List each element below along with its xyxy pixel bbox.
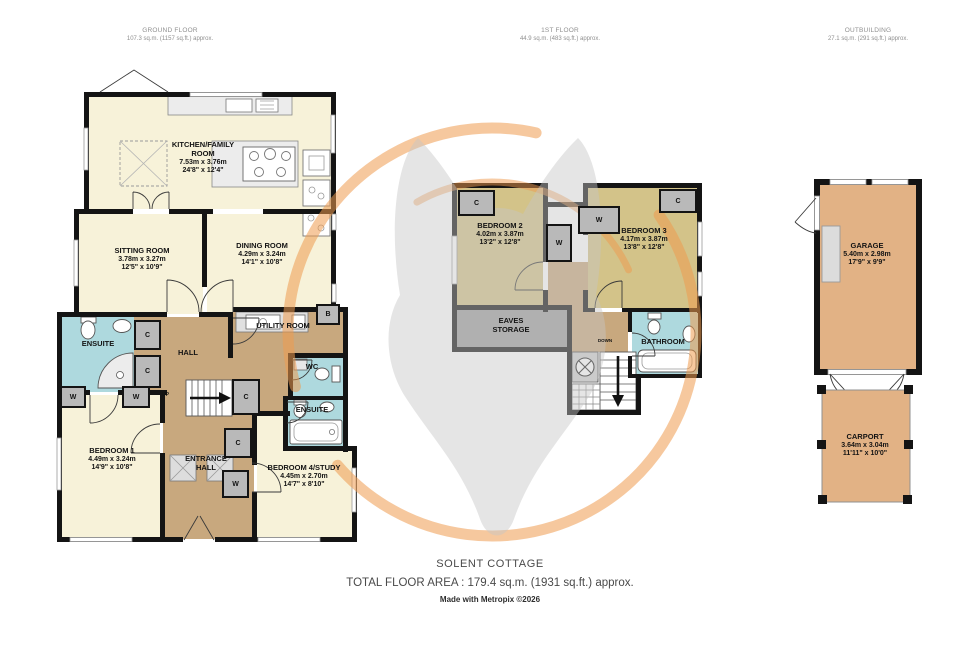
rooflight-box <box>572 352 598 382</box>
room-label-eaves: EAVES STORAGE <box>481 317 541 335</box>
first-floor-title: 1ST FLOOR <box>460 26 660 35</box>
cupboard-box: C <box>224 428 252 458</box>
room-label-bedroom3: BEDROOM 3 4.17m x 3.87m 13'8" x 12'8" <box>596 227 692 252</box>
room-label-dining: DINING ROOM 4.29m x 3.24m 14'1" x 10'8" <box>217 242 307 267</box>
boiler-box: B <box>316 304 340 325</box>
ground-floor-title: GROUND FLOOR <box>70 26 270 35</box>
room-label-garage: GARAGE 5.40m x 2.98m 17'9" x 9'9" <box>819 242 915 267</box>
room-label-bedroom4: BEDROOM 4/STUDY 4.45m x 2.70m 14'7" x 8'… <box>249 464 359 489</box>
ground-floor-area: 107.3 sq.m. (1157 sq.ft.) approx. <box>70 35 270 43</box>
room-label-ensuite2: ENSUITE <box>277 406 347 415</box>
cupboard-box: C <box>134 320 161 350</box>
kitchen-counter-sink <box>168 96 292 115</box>
first-floor-area: 44.9 sq.m. (483 sq.ft.) approx. <box>460 35 660 43</box>
room-label-bedroom2: BEDROOM 2 4.02m x 3.87m 13'2" x 12'8" <box>452 222 548 247</box>
metropix-credit: Made with Metropix ©2026 <box>0 595 980 604</box>
room-label-wc: WC <box>294 363 330 372</box>
wardrobe-box: W <box>546 224 572 262</box>
room-label-utility: UTILITY ROOM <box>253 322 313 331</box>
hatched-glazing <box>572 384 600 410</box>
room-label-ensuite1: ENSUITE <box>63 340 133 349</box>
room-label-sitting: SITTING ROOM 3.78m x 3.27m 12'5" x 10'9" <box>97 247 187 272</box>
outbuilding-title: OUTBUILDING <box>768 26 968 35</box>
room-label-bathroom: BATHROOM <box>625 338 701 347</box>
stairs-down-label: DOWN <box>592 338 618 343</box>
outbuilding-area: 27.1 sq.m. (291 sq.ft.) approx. <box>768 35 968 43</box>
ground-floor-header: GROUND FLOOR 107.3 sq.m. (1157 sq.ft.) a… <box>70 26 270 43</box>
stairs-up-label: UP <box>162 392 169 398</box>
cupboard-box: C <box>232 379 260 415</box>
room-label-kitchen: KITCHEN/FAMILY ROOM 7.53m x 3.76m 24'8" … <box>161 141 245 175</box>
wardrobe-box: W <box>60 386 86 408</box>
kitchen-appliances <box>303 150 330 236</box>
cupboard-box: C <box>458 190 495 216</box>
floorplan-canvas: GROUND FLOOR 107.3 sq.m. (1157 sq.ft.) a… <box>0 0 980 671</box>
outbuilding-header: OUTBUILDING 27.1 sq.m. (291 sq.ft.) appr… <box>768 26 968 43</box>
stairs-up <box>186 380 232 416</box>
wardrobe-box: W <box>222 470 249 498</box>
room-label-entrance: ENTRANCE HALL <box>176 455 236 473</box>
first-floor-header: 1ST FLOOR 44.9 sq.m. (483 sq.ft.) approx… <box>460 26 660 43</box>
room-label-bedroom1: BEDROOM 1 4.49m x 3.24m 14'9" x 10'8" <box>64 447 160 472</box>
cupboard-box: C <box>134 355 161 388</box>
first-floor-plan <box>452 183 702 415</box>
total-floor-area: TOTAL FLOOR AREA : 179.4 sq.m. (1931 sq.… <box>0 577 980 589</box>
room-label-carport: CARPORT 3.64m x 3.04m 11'11" x 10'0" <box>817 433 913 458</box>
cupboard-box: C <box>659 189 697 213</box>
property-name: SOLENT COTTAGE <box>0 558 980 570</box>
room-label-hall: HALL <box>158 349 218 358</box>
wardrobe-box: W <box>122 386 150 408</box>
